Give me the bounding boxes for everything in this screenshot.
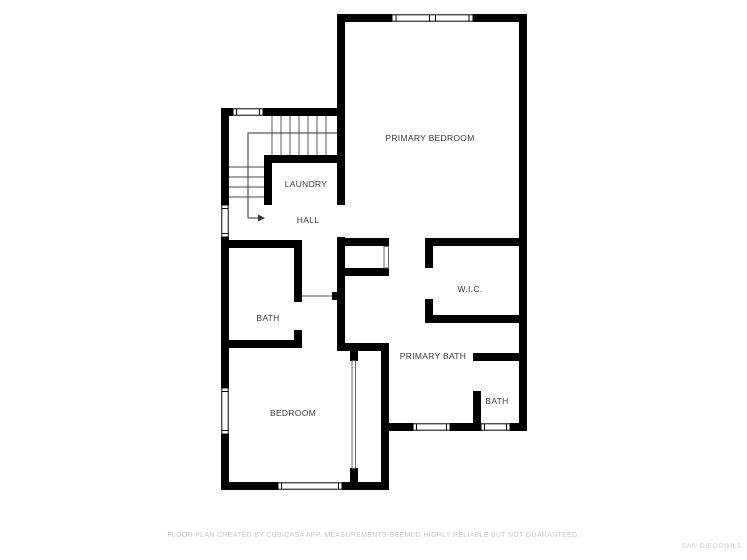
wall <box>337 14 392 22</box>
wall <box>229 340 302 348</box>
wall <box>473 391 481 431</box>
windows <box>222 15 510 489</box>
wall <box>350 351 358 361</box>
wall <box>337 237 345 351</box>
wall <box>264 155 272 205</box>
disclaimer-text: FLOOR PLAN CREATED BY CUBICASA APP. MEAS… <box>0 532 747 539</box>
wall <box>381 423 413 431</box>
room-label-laundry: LAUNDRY <box>285 179 328 189</box>
closet-door-line <box>384 247 389 269</box>
floor-plan-canvas <box>0 0 747 560</box>
exterior-walls <box>221 14 527 490</box>
wall <box>221 434 229 490</box>
openings <box>302 247 389 469</box>
stairs-direction-arrow-icon <box>258 215 265 222</box>
room-label-wic: W.I.C. <box>458 284 483 294</box>
wall <box>425 315 527 323</box>
window <box>392 15 473 21</box>
wall <box>221 108 229 205</box>
room-label-bath: BATH <box>256 313 279 323</box>
room-label-bedroom: BEDROOM <box>270 408 316 418</box>
wall <box>381 343 389 490</box>
wall <box>263 108 337 116</box>
closet-door-line <box>352 361 356 469</box>
window <box>413 424 450 430</box>
mls-watermark: SAN DIEGO|MLS <box>682 543 742 550</box>
wall <box>473 14 527 22</box>
room-label-primary-bath: PRIMARY BATH <box>400 351 466 361</box>
wall <box>425 238 527 246</box>
floor-plan-page: PRIMARY BEDROOM LAUNDRY HALL W.I.C. BATH… <box>0 0 747 560</box>
wall <box>425 238 433 268</box>
wall <box>221 237 229 388</box>
wall <box>345 238 389 246</box>
wall <box>221 482 278 490</box>
wall <box>221 240 302 248</box>
wall <box>510 423 527 431</box>
wall <box>350 468 358 482</box>
window <box>278 483 342 489</box>
wall <box>332 292 338 300</box>
wall <box>519 14 527 431</box>
window <box>481 424 510 430</box>
wall <box>340 343 389 351</box>
room-label-bath-2: BATH <box>485 396 508 406</box>
room-label-hall: HALL <box>297 215 319 225</box>
wall <box>345 268 389 276</box>
window <box>222 205 228 237</box>
wall <box>337 14 345 205</box>
wall <box>264 155 344 163</box>
wall <box>473 353 519 361</box>
window <box>233 109 263 115</box>
room-label-primary-bedroom: PRIMARY BEDROOM <box>385 133 474 143</box>
wall <box>294 240 302 302</box>
window <box>222 388 228 434</box>
